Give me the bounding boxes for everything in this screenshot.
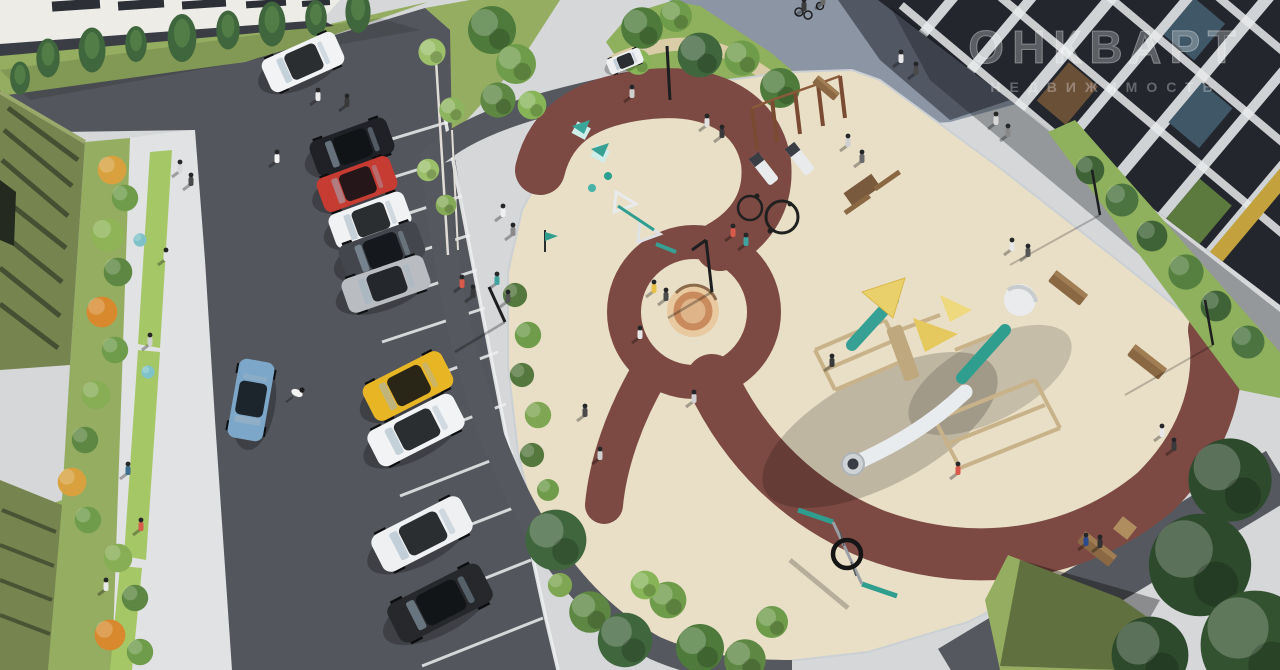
courtyard-render: ОНКВАРТ НЕДВИЖИМОСТЬ xyxy=(0,0,1280,670)
scene-render xyxy=(0,0,1280,670)
spring-rider xyxy=(604,172,612,180)
spring-rider xyxy=(588,184,596,192)
